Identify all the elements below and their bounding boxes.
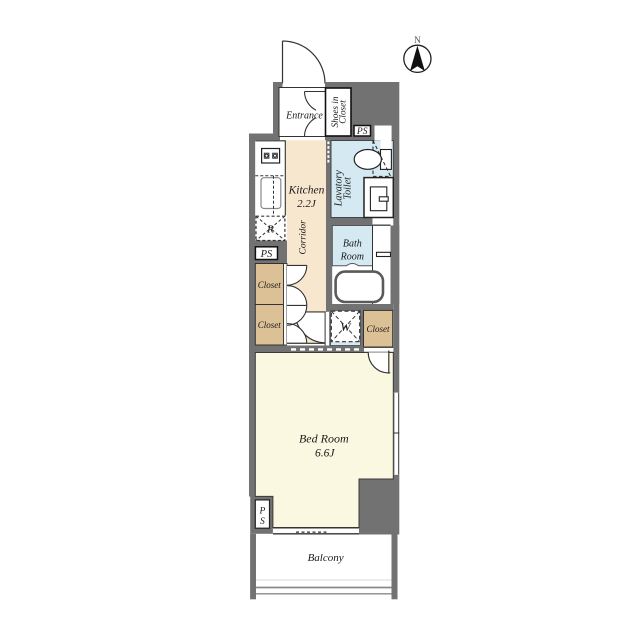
svg-text:Closet: Closet xyxy=(366,324,390,334)
svg-text:PS: PS xyxy=(260,249,273,260)
svg-text:Corridor: Corridor xyxy=(299,220,309,255)
svg-text:S: S xyxy=(260,517,265,527)
svg-text:N: N xyxy=(414,36,421,46)
svg-text:Closet: Closet xyxy=(258,280,282,290)
svg-text:Bath: Bath xyxy=(343,239,362,250)
svg-text:Entrance: Entrance xyxy=(285,111,323,122)
svg-text:PS: PS xyxy=(356,127,368,137)
svg-text:6.6J: 6.6J xyxy=(315,448,335,460)
svg-text:W: W xyxy=(341,320,352,334)
svg-text:Room: Room xyxy=(340,251,364,262)
svg-text:R: R xyxy=(266,224,274,236)
svg-text:Kitchen: Kitchen xyxy=(288,184,325,196)
svg-text:Bed Room: Bed Room xyxy=(299,432,349,446)
svg-text:Closet: Closet xyxy=(337,100,347,124)
svg-text:Balcony: Balcony xyxy=(308,552,344,564)
svg-text:Closet: Closet xyxy=(258,320,282,330)
svg-text:Toilet: Toilet xyxy=(343,177,354,200)
svg-text:P: P xyxy=(258,507,265,517)
svg-text:2.2J: 2.2J xyxy=(297,198,317,210)
